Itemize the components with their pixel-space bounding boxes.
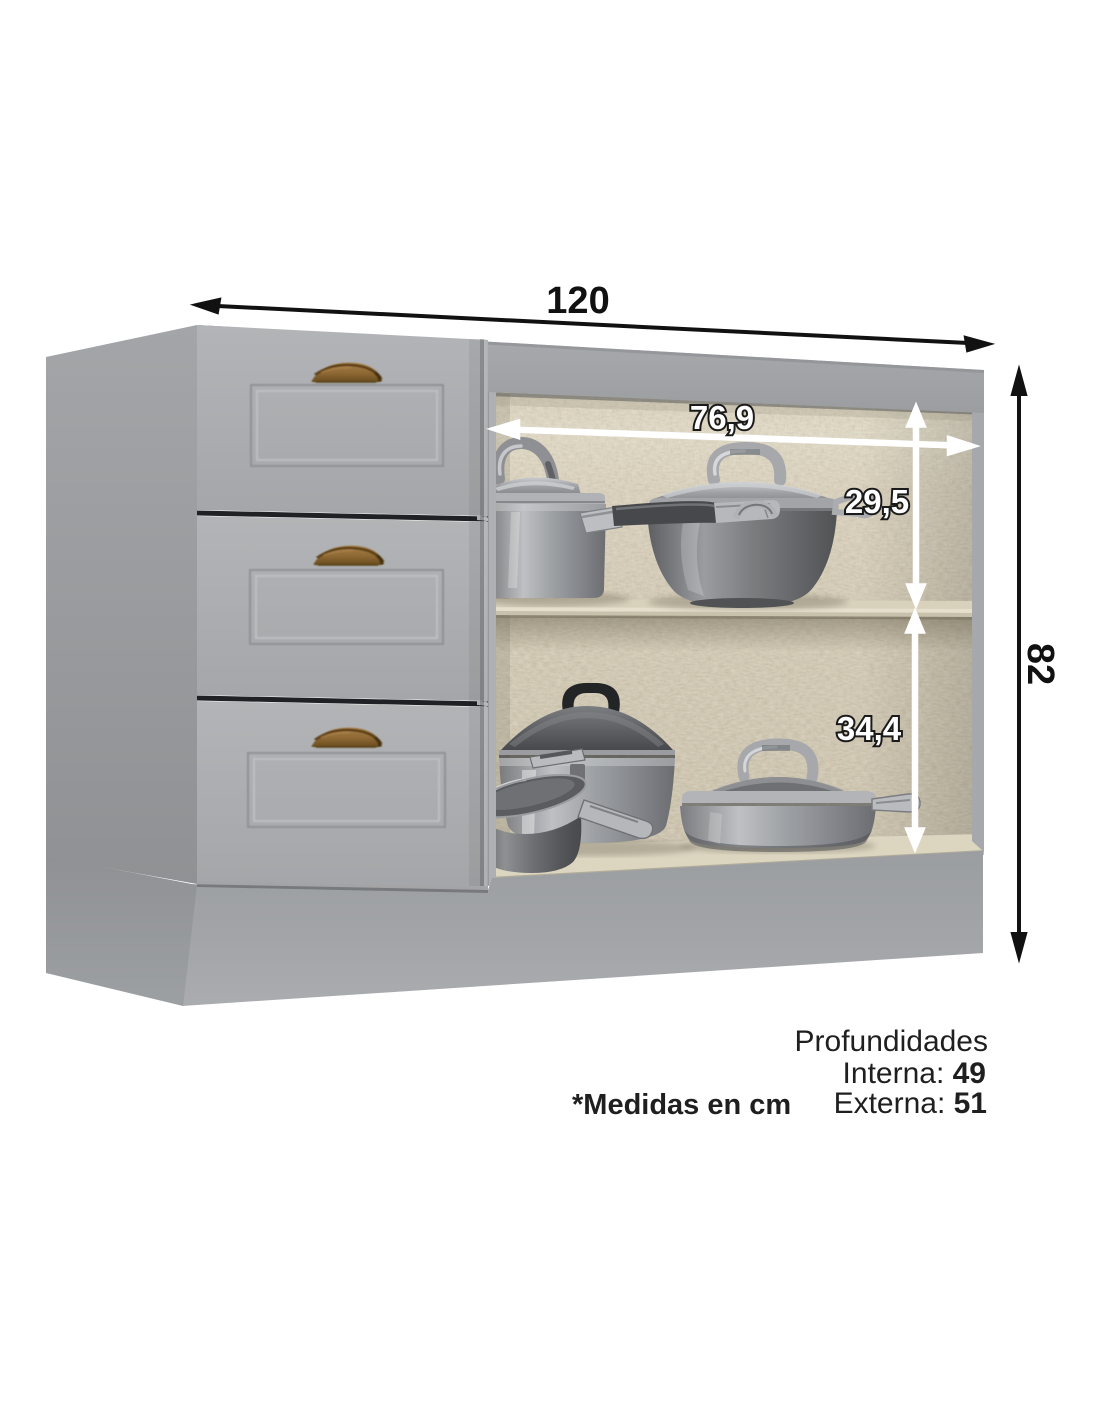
svg-text:120: 120 (546, 280, 609, 322)
svg-text:Externa: 51: Externa: 51 (834, 1087, 987, 1120)
svg-text:34,4: 34,4 (837, 710, 902, 747)
svg-text:76,9: 76,9 (690, 399, 754, 436)
svg-text:82: 82 (1019, 643, 1061, 685)
svg-text:29,5: 29,5 (845, 483, 909, 520)
svg-text:*Medidas en cm: *Medidas en cm (572, 1089, 791, 1121)
svg-text:Interna: 49: Interna: 49 (843, 1057, 986, 1090)
svg-text:Profundidades: Profundidades (795, 1025, 988, 1058)
